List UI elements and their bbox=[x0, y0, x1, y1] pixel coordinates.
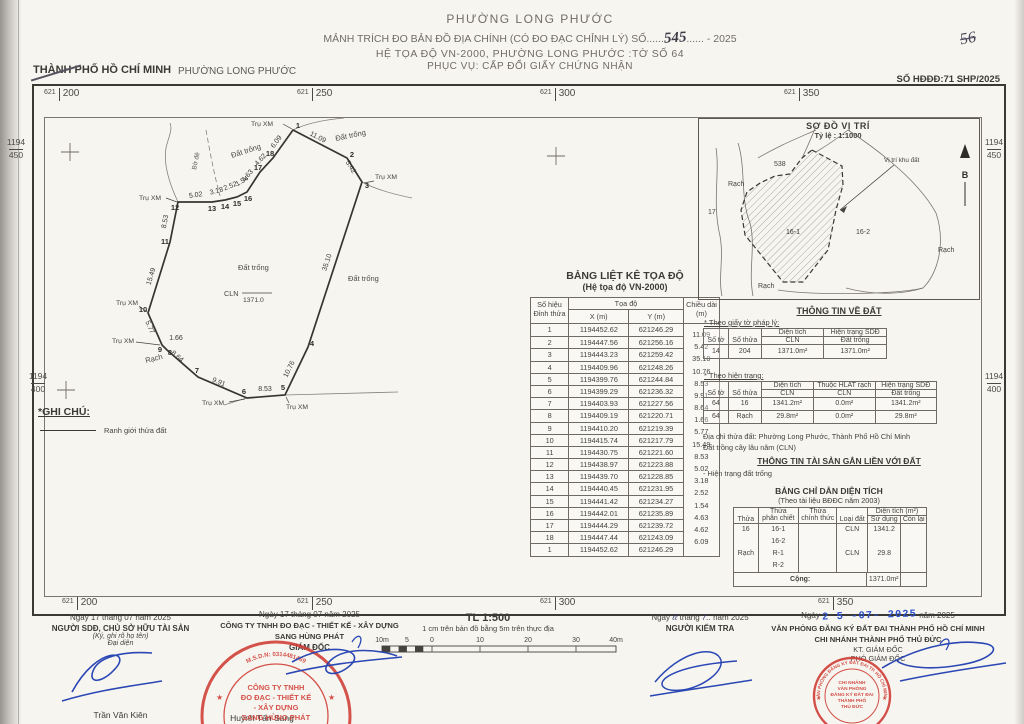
current-land-row: 64 Rạch 29.8m² 0.0m² 29.8m² bbox=[704, 410, 936, 423]
coord-row: 8 1194409.19 621220.71 1.66 bbox=[531, 409, 719, 421]
coord-row: 9 1194410.20 621219.39 5.77 bbox=[531, 422, 719, 434]
svg-text:6.09: 6.09 bbox=[270, 134, 284, 149]
current-label: * Theo hiện trạng: bbox=[704, 371, 764, 380]
svg-text:2: 2 bbox=[350, 150, 354, 159]
svg-text:Rạch: Rạch bbox=[144, 352, 163, 365]
seal-star-icon: ★ bbox=[216, 693, 223, 702]
svg-text:8.64: 8.64 bbox=[170, 350, 185, 364]
company-seal-center-text: CÔNG TY TNHH ĐO ĐẠC - THIẾT KẾ - XÂY DỰN… bbox=[241, 683, 311, 722]
svg-text:Đất trống: Đất trống bbox=[348, 274, 379, 283]
area-table-row: 16 16-1 CLN 1341.2 bbox=[734, 524, 926, 536]
asset-info-title: THÔNG TIN TÀI SẢN GẮN LIỀN VỚI ĐẤT bbox=[700, 456, 978, 466]
coord-row: 13 1194439.70 621228.85 3.18 bbox=[531, 470, 719, 482]
svg-text:SANG HÙNG PHÁT: SANG HÙNG PHÁT bbox=[242, 713, 311, 722]
svg-text:THÀNH PHỐ: THÀNH PHỐ bbox=[838, 697, 867, 704]
seal-star-icon: ★ bbox=[882, 695, 887, 702]
company-seal: M.S.D.N: 0314481469 THÀNH PHỐ HỒ CHÍ MIN… bbox=[202, 642, 350, 724]
registry-seal: VĂN PHÒNG ĐĂNG KÝ ĐẤT ĐAI TP. HỒ CHÍ MIN… bbox=[0, 600, 890, 724]
notes-section: *GHI CHÚ: Ranh giới thửa đất bbox=[38, 406, 510, 445]
svg-text:7: 7 bbox=[195, 366, 199, 375]
svg-text:16: 16 bbox=[244, 194, 252, 203]
coord-row: 15 1194441.42 621234.27 1.54 bbox=[531, 495, 719, 507]
parcel-area-label: CLN 1371.0 bbox=[224, 289, 272, 304]
grid-label: 1194450 bbox=[4, 138, 28, 161]
coord-row: 17 1194444.29 621239.72 4.62 bbox=[531, 519, 719, 531]
land-info-title: THÔNG TIN VỀ ĐẤT bbox=[700, 306, 978, 316]
svg-text:VĂN PHÒNG ĐĂNG KÝ ĐẤT ĐAI TP.: VĂN PHÒNG ĐĂNG KÝ ĐẤT ĐAI TP. HỒ CHÍ MIN… bbox=[0, 600, 889, 698]
area-table-total-row: Cộng: 1371.0m² bbox=[734, 572, 926, 586]
svg-text:CLN: CLN bbox=[224, 289, 238, 298]
current-land-row: 64 16 1341.2m² 0.0m² 1341.2m² bbox=[704, 397, 936, 410]
svg-text:11: 11 bbox=[161, 237, 169, 246]
handwritten-corner-number: 56 bbox=[959, 29, 978, 50]
area-table-row: Rạch R-1 CLN 29.8 bbox=[734, 548, 926, 560]
site-parcel-hatched bbox=[741, 150, 843, 282]
legend-row: Ranh giới thửa đất bbox=[40, 426, 510, 435]
seal-star-icon: ★ bbox=[328, 693, 335, 702]
coord-row: 3 1194443.23 621259.42 35.10 bbox=[531, 348, 719, 360]
svg-text:1.66: 1.66 bbox=[169, 335, 183, 342]
owner-signature bbox=[62, 653, 162, 701]
grid-cross-marks bbox=[57, 143, 565, 399]
handwritten-tick-marks bbox=[352, 636, 949, 650]
svg-text:Đất trống: Đất trống bbox=[335, 128, 367, 143]
svg-text:CHI NHÁNH: CHI NHÁNH bbox=[839, 679, 866, 686]
coord-table-body: 1 1194452.62 621246.29 11.09 2 1194447.5… bbox=[531, 324, 719, 556]
coordinate-table: Số hiệuĐỉnh thửa Tọa độ X (m)Y (m) Chiều… bbox=[530, 297, 720, 557]
svg-text:Trụ XM: Trụ XM bbox=[112, 338, 134, 345]
legal-land-table: Số tờ Số thửa Diện tíchCLN Hiện trạng SD… bbox=[703, 328, 887, 359]
ward-label: PHƯỜNG LONG PHƯỚC bbox=[178, 66, 296, 77]
svg-text:1371.0: 1371.0 bbox=[243, 297, 264, 304]
svg-text:Trụ XM: Trụ XM bbox=[139, 195, 161, 202]
svg-text:16-1: 16-1 bbox=[786, 229, 800, 236]
cadastral-document-page: PHƯỜNG LONG PHƯỚC MẢNH TRÍCH ĐO BẢN ĐỒ Đ… bbox=[0, 0, 1024, 724]
area-table-title-block: BẢNG CHỈ DẪN DIỆN TÍCH (Theo tài liệu BĐ… bbox=[700, 486, 958, 505]
svg-text:Trụ XM: Trụ XM bbox=[375, 174, 397, 181]
svg-text:6: 6 bbox=[242, 387, 246, 396]
legal-label: * Theo giấy tờ pháp lý: bbox=[704, 318, 779, 327]
svg-text:Đất trống: Đất trống bbox=[230, 142, 262, 160]
svg-text:4: 4 bbox=[310, 339, 315, 348]
coord-row: 2 1194447.56 621256.16 5.42 bbox=[531, 336, 719, 348]
land-type-note: Đất trồng cây lâu năm (CLN) bbox=[703, 443, 796, 452]
svg-text:13: 13 bbox=[208, 204, 216, 213]
svg-text:15: 15 bbox=[233, 199, 241, 208]
svg-text:8.53: 8.53 bbox=[258, 386, 272, 393]
svg-text:- XÂY DỰNG: - XÂY DỰNG bbox=[254, 703, 299, 712]
svg-text:16-2: 16-2 bbox=[856, 229, 870, 236]
document-header: PHƯỜNG LONG PHƯỚC MẢNH TRÍCH ĐO BẢN ĐỒ Đ… bbox=[240, 12, 820, 73]
svg-text:Rạch: Rạch bbox=[758, 283, 774, 290]
svg-text:Rạch: Rạch bbox=[728, 181, 744, 188]
svg-text:5.77: 5.77 bbox=[143, 320, 155, 335]
coord-row: 4 1194409.96 621248.26 10.76 bbox=[531, 361, 719, 373]
location-inset-map: Rạch 17 538 16-1 16-2 Rạch Rạch Vị trí k… bbox=[698, 118, 978, 298]
svg-text:538: 538 bbox=[774, 161, 786, 168]
area-index-table: Thửa Thửaphân chiết Thửachính thức Loại … bbox=[733, 507, 927, 587]
handwritten-map-number: 545 bbox=[663, 28, 687, 48]
svg-text:Bờ đê: Bờ đê bbox=[191, 151, 202, 170]
legend-label: Ranh giới thửa đất bbox=[104, 426, 166, 435]
seal-star-icon: ★ bbox=[816, 695, 821, 702]
svg-text:Vị trí khu đất: Vị trí khu đất bbox=[884, 155, 920, 164]
coord-row: 7 1194403.93 621227.56 8.64 bbox=[531, 397, 719, 409]
svg-text:1: 1 bbox=[296, 121, 300, 130]
coord-row: 14 1194440.45 621231.95 2.52 bbox=[531, 482, 719, 494]
header-coordinate-system: HỆ TỌA ĐỘ VN-2000, PHƯỜNG LONG PHƯỚC :TỜ… bbox=[240, 48, 820, 61]
area-table-body: 16 16-1 CLN 1341.2 16-2 Rạch R-1 CLN 29.… bbox=[734, 523, 926, 572]
area-table-row: 16-2 bbox=[734, 536, 926, 548]
svg-text:5.02: 5.02 bbox=[189, 191, 204, 200]
inspector-signature bbox=[650, 652, 752, 696]
site-leader-arrow bbox=[840, 165, 894, 213]
current-land-table: Số tờ Số thửa Diện tíchCLN Thuộc HLAT rạ… bbox=[703, 381, 937, 424]
asset-status: - Hiện trạng đất trống bbox=[703, 469, 772, 478]
svg-text:17: 17 bbox=[708, 209, 716, 216]
svg-text:12: 12 bbox=[171, 203, 179, 212]
signatures-and-seals: M.S.D.N: 0314481469 THÀNH PHỐ HỒ CHÍ MIN… bbox=[0, 600, 1024, 724]
svg-text:5: 5 bbox=[281, 383, 285, 392]
svg-text:Trụ XM: Trụ XM bbox=[116, 300, 138, 307]
svg-text:ĐO ĐẠC - THIẾT KẾ: ĐO ĐẠC - THIẾT KẾ bbox=[241, 692, 311, 702]
svg-text:Trụ XM: Trụ XM bbox=[251, 121, 273, 128]
svg-text:CÔNG TY TNHH: CÔNG TY TNHH bbox=[248, 683, 305, 692]
svg-text:10: 10 bbox=[139, 305, 147, 314]
edge-length-labels: 11.09 5.42 35.10 10.76 8.53 9.91 8.64 1.… bbox=[143, 131, 357, 393]
coord-table-title: BẢNG LIỆT KÊ TỌA ĐỘ (Hệ tọa độ VN-2000) bbox=[528, 270, 722, 292]
svg-text:14: 14 bbox=[221, 202, 230, 211]
coord-row: 1 1194452.62 621246.29 11.09 bbox=[531, 324, 719, 336]
header-title-line: MẢNH TRÍCH ĐO BẢN ĐỒ ĐỊA CHÍNH (CÓ ĐO ĐẠ… bbox=[240, 29, 820, 48]
north-arrow: B bbox=[960, 144, 970, 206]
coord-row: 18 1194447.44 621243.09 6.09 bbox=[531, 531, 719, 543]
coord-row: 1 1194452.62 621246.29 bbox=[531, 543, 719, 555]
parcel-address: Địa chỉ thửa đất: Phường Long Phước, Thà… bbox=[703, 432, 910, 441]
current-land-body: 64 16 1341.2m² 0.0m² 1341.2m² 64 Rạch 29… bbox=[704, 397, 936, 423]
svg-text:Đất trống: Đất trống bbox=[238, 263, 269, 272]
svg-text:35.10: 35.10 bbox=[322, 253, 334, 272]
svg-text:9.91: 9.91 bbox=[211, 377, 226, 389]
svg-text:5.42: 5.42 bbox=[344, 160, 357, 175]
registry-seal-center-text: CHI NHÁNH VĂN PHÒNG ĐĂNG KÝ ĐẤT ĐAI THÀN… bbox=[831, 679, 875, 710]
header-purpose: PHỤC VỤ: CẤP ĐỔI GIẤY CHỨNG NHẬN bbox=[240, 61, 820, 74]
svg-text:8.53: 8.53 bbox=[161, 214, 170, 229]
area-table-row: R-2 bbox=[734, 560, 926, 572]
svg-text:B: B bbox=[962, 170, 969, 180]
coord-row: 16 1194442.01 621235.89 4.63 bbox=[531, 507, 719, 519]
notes-title: *GHI CHÚ: bbox=[38, 406, 510, 418]
coord-row: 6 1194399.29 621236.32 9.91 bbox=[531, 385, 719, 397]
boundary-legend-line bbox=[40, 430, 96, 432]
coord-table-header: Số hiệuĐỉnh thửa Tọa độ X (m)Y (m) Chiều… bbox=[531, 298, 719, 324]
registry-signature bbox=[882, 642, 1006, 681]
svg-text:THỦ ĐỨC: THỦ ĐỨC bbox=[841, 703, 864, 710]
svg-text:3.18: 3.18 bbox=[209, 186, 224, 196]
coord-row: 12 1194438.97 621223.88 5.02 bbox=[531, 458, 719, 470]
svg-text:15.49: 15.49 bbox=[146, 267, 158, 286]
svg-text:ĐĂNG KÝ ĐẤT ĐAI: ĐĂNG KÝ ĐẤT ĐAI bbox=[831, 691, 875, 698]
header-region: PHƯỜNG LONG PHƯỚC bbox=[240, 12, 820, 27]
coord-row: 10 1194415.74 621217.79 15.49 bbox=[531, 434, 719, 446]
coord-row: 5 1194399.76 621244.84 8.53 bbox=[531, 373, 719, 385]
svg-text:Rạch: Rạch bbox=[938, 247, 954, 254]
coord-row: 11 1194430.75 621221.60 8.53 bbox=[531, 446, 719, 458]
